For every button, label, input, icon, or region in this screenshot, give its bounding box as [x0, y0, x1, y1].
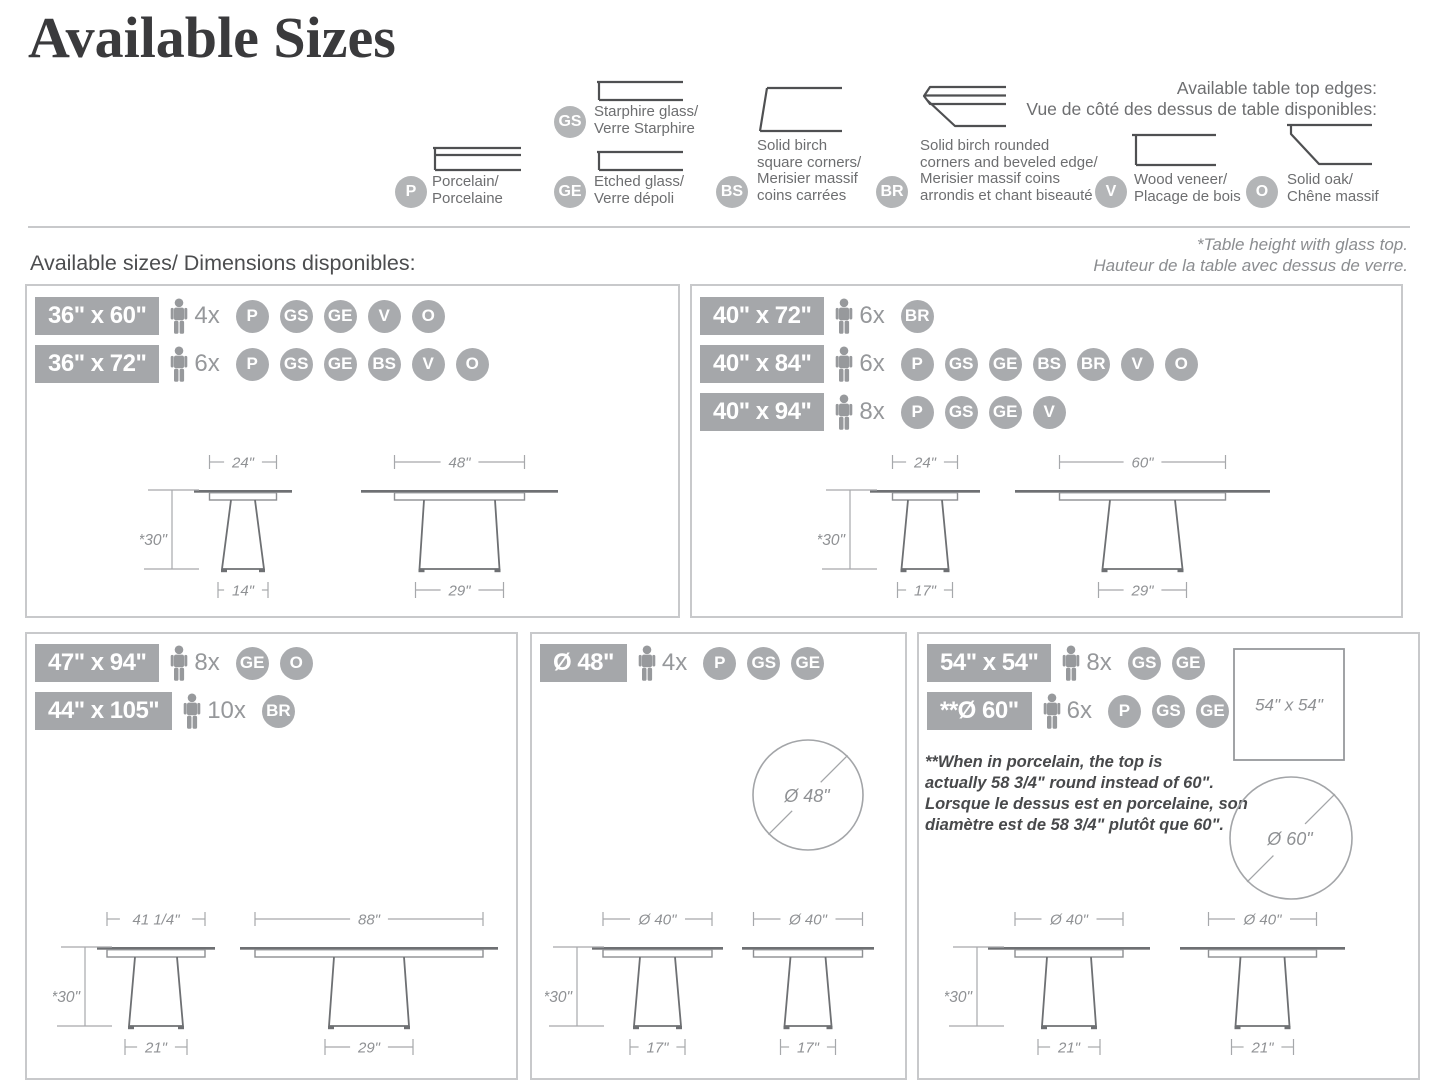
- page-title: Available Sizes: [28, 4, 396, 71]
- finish-badge: P: [1108, 695, 1141, 728]
- finish-badge: O: [280, 647, 313, 680]
- seat-count: 8x: [1086, 649, 1111, 677]
- size-row: 54" x 54" 8x GS GE: [927, 643, 1205, 683]
- finish-badge: BR: [262, 695, 295, 728]
- size-chip: 40" x 72": [700, 297, 824, 335]
- finish-badge: GE: [236, 647, 269, 680]
- person-icon: [1041, 693, 1063, 729]
- finish-badges: P GS GE: [1108, 695, 1229, 728]
- edge-profile-birch-beveled-icon: [921, 84, 1006, 136]
- svg-text:Ø 40": Ø 40": [638, 912, 678, 929]
- svg-text:21": 21": [144, 1040, 168, 1057]
- porcelain-footnote: **When in porcelain, the top is actually…: [925, 752, 1235, 836]
- finish-badge: GE: [324, 300, 357, 333]
- person-icon: [833, 346, 855, 382]
- svg-text:*30": *30": [53, 989, 81, 1006]
- svg-text:29": 29": [357, 1040, 381, 1057]
- finish-badges: BR: [901, 300, 934, 333]
- table-side-view-drawing: 41 1/4"21"*30": [53, 905, 238, 1065]
- finish-badges: P GS GE V: [901, 396, 1066, 429]
- legend-label-porcelain: Porcelain/Porcelaine: [432, 174, 503, 207]
- finish-badge: BR: [1077, 348, 1110, 381]
- svg-text:60": 60": [1131, 455, 1154, 472]
- edge-profile-porcelain-icon: [433, 146, 521, 172]
- edge-profile-oak-icon: [1287, 122, 1372, 168]
- legend-label-etched: Etched glass/Verre dépoli: [594, 174, 684, 207]
- svg-text:*30": *30": [545, 989, 573, 1006]
- seat-count: 6x: [859, 350, 884, 378]
- table-side-view-drawing: 60"29": [1010, 448, 1273, 608]
- seat-count: 6x: [1067, 697, 1092, 725]
- svg-text:14": 14": [232, 583, 255, 600]
- size-chip: 36" x 60": [35, 297, 159, 335]
- legend-label-birch-beveled: Solid birch roundedcorners and beveled e…: [920, 138, 1098, 204]
- seat-count: 8x: [859, 398, 884, 426]
- legend-badge-etched: GE: [554, 176, 586, 208]
- svg-text:54" x 54": 54" x 54": [1255, 696, 1324, 715]
- size-chip: 54" x 54": [927, 644, 1051, 682]
- person-icon: [833, 298, 855, 334]
- person-icon: [833, 394, 855, 430]
- finish-badge: GE: [1196, 695, 1229, 728]
- table-side-view-drawing: Ø 40"21": [1175, 905, 1347, 1065]
- size-chip: 40" x 94": [700, 393, 824, 431]
- svg-text:29": 29": [447, 583, 471, 600]
- size-row: Ø 48" 4x P GS GE: [540, 643, 824, 683]
- svg-text:21": 21": [1057, 1040, 1081, 1057]
- finish-badge: BR: [901, 300, 934, 333]
- svg-text:Ø 60": Ø 60": [1266, 829, 1314, 849]
- legend-label-birch-square: Solid birchsquare corners/Merisier massi…: [757, 138, 861, 204]
- legend-label-starphire: Starphire glass/Verre Starphire: [594, 104, 698, 137]
- legend-badge-starphire: GS: [554, 106, 586, 138]
- finish-badge: O: [412, 300, 445, 333]
- finish-badges: GS GE: [1128, 647, 1205, 680]
- edge-profile-birch-square-icon: [757, 86, 842, 134]
- svg-text:17": 17": [914, 583, 937, 600]
- finish-badge: GS: [280, 348, 313, 381]
- finish-badge: P: [901, 348, 934, 381]
- size-row: 40" x 94" 8x P GS GE V: [700, 392, 1066, 432]
- finish-badges: GE O: [236, 647, 313, 680]
- svg-text:17": 17": [646, 1040, 669, 1057]
- svg-text:*30": *30": [140, 532, 168, 549]
- legend-badge-oak: O: [1246, 176, 1278, 208]
- svg-text:*30": *30": [818, 532, 846, 549]
- table-side-view-drawing: Ø 40"21"*30": [945, 905, 1158, 1065]
- legend-badge-veneer: V: [1095, 176, 1127, 208]
- finish-badges: BR: [262, 695, 295, 728]
- finish-badge: P: [236, 348, 269, 381]
- svg-text:48": 48": [448, 455, 471, 472]
- table-side-view-drawing: 24"14"*30": [140, 448, 315, 608]
- seat-count: 4x: [194, 302, 219, 330]
- legend-badge-porcelain: P: [395, 176, 427, 208]
- finish-badges: P GS GE V O: [236, 300, 445, 333]
- finish-badges: P GS GE: [703, 647, 824, 680]
- finish-badge: GS: [945, 348, 978, 381]
- size-row: **Ø 60" 6x P GS GE: [927, 691, 1229, 731]
- person-icon: [181, 693, 203, 729]
- glass-top-footnote: *Table height with glass top. Hauteur de…: [1093, 234, 1408, 276]
- round-top-drawing: Ø 60": [1228, 775, 1354, 901]
- svg-text:17": 17": [797, 1040, 820, 1057]
- edges-heading: Available table top edges: Vue de côté d…: [1026, 78, 1377, 120]
- finish-badge: P: [901, 396, 934, 429]
- table-side-view-drawing: 88"29": [235, 905, 503, 1065]
- finish-badge: GS: [945, 396, 978, 429]
- svg-text:29": 29": [1130, 583, 1154, 600]
- finish-badge: GE: [989, 396, 1022, 429]
- finish-badge: O: [1165, 348, 1198, 381]
- person-icon: [636, 645, 658, 681]
- size-row: 40" x 84" 6x P GS GE BS BR V O: [700, 344, 1198, 384]
- round-top-drawing: Ø 48": [751, 738, 865, 852]
- finish-badge: GS: [280, 300, 313, 333]
- seat-count: 4x: [662, 649, 687, 677]
- legend-badge-birch-beveled: BR: [876, 176, 908, 208]
- table-side-view-drawing: Ø 40"17": [738, 905, 879, 1065]
- panel-36-tables: 36" x 60" 4x P GS GE V O 36" x 72" 6x P …: [25, 284, 680, 618]
- svg-text:21": 21": [1250, 1040, 1274, 1057]
- finish-badge: P: [703, 647, 736, 680]
- table-side-view-drawing: 48"29": [355, 448, 567, 608]
- size-row: 47" x 94" 8x GE O: [35, 643, 313, 683]
- finish-badge: P: [236, 300, 269, 333]
- finish-badge: V: [368, 300, 401, 333]
- table-side-view-drawing: 24"17"*30": [818, 448, 993, 608]
- finish-badge: GE: [324, 348, 357, 381]
- svg-text:24": 24": [231, 455, 255, 472]
- size-chip: 36" x 72": [35, 345, 159, 383]
- size-chip: 47" x 94": [35, 644, 159, 682]
- person-icon: [168, 346, 190, 382]
- finish-badge: GS: [1128, 647, 1161, 680]
- svg-text:*30": *30": [945, 989, 973, 1006]
- seat-count: 8x: [194, 649, 219, 677]
- finish-badge: BS: [368, 348, 401, 381]
- seat-count: 10x: [207, 697, 246, 725]
- finish-badge: GS: [747, 647, 780, 680]
- finish-badge: GE: [791, 647, 824, 680]
- person-icon: [168, 298, 190, 334]
- section-label: Available sizes/ Dimensions disponibles:: [30, 251, 416, 276]
- svg-text:Ø 40": Ø 40": [1049, 912, 1089, 929]
- finish-badges: P GS GE BS V O: [236, 348, 489, 381]
- size-chip: 44" x 105": [35, 692, 172, 730]
- seat-count: 6x: [194, 350, 219, 378]
- svg-text:Ø 40": Ø 40": [788, 912, 828, 929]
- legend-label-veneer: Wood veneer/Placage de bois: [1134, 172, 1241, 205]
- size-row: 44" x 105" 10x BR: [35, 691, 295, 731]
- svg-text:88": 88": [358, 912, 381, 929]
- finish-badge: O: [456, 348, 489, 381]
- svg-text:Ø 48": Ø 48": [783, 786, 831, 806]
- finish-badge: GE: [989, 348, 1022, 381]
- edge-profile-starphire-icon: [597, 80, 683, 102]
- finish-badge: GS: [1152, 695, 1185, 728]
- size-row: 36" x 60" 4x P GS GE V O: [35, 296, 445, 336]
- finish-badge: BS: [1033, 348, 1066, 381]
- divider: [28, 226, 1410, 228]
- edge-profile-veneer-icon: [1132, 132, 1216, 168]
- svg-text:Ø 40": Ø 40": [1243, 912, 1283, 929]
- size-row: 40" x 72" 6x BR: [700, 296, 934, 336]
- finish-badges: P GS GE BS BR V O: [901, 348, 1198, 381]
- legend-badge-birch-square: BS: [716, 176, 748, 208]
- size-chip: **Ø 60": [927, 692, 1032, 730]
- size-chip: Ø 48": [540, 644, 627, 682]
- seat-count: 6x: [859, 302, 884, 330]
- svg-text:24": 24": [913, 455, 937, 472]
- person-icon: [168, 645, 190, 681]
- size-row: 36" x 72" 6x P GS GE BS V O: [35, 344, 489, 384]
- edge-profile-etched-icon: [597, 150, 683, 172]
- spec-sheet-page: Available Sizes P GS GE BS BR V O Porcel…: [0, 0, 1445, 1084]
- finish-badge: V: [412, 348, 445, 381]
- finish-badge: V: [1033, 396, 1066, 429]
- finish-badge: V: [1121, 348, 1154, 381]
- size-chip: 40" x 84": [700, 345, 824, 383]
- legend-label-oak: Solid oak/Chêne massif: [1287, 172, 1379, 205]
- table-side-view-drawing: Ø 40"17"*30": [545, 905, 730, 1065]
- finish-badge: GE: [1172, 647, 1205, 680]
- person-icon: [1060, 645, 1082, 681]
- square-top-drawing: 54" x 54": [1233, 648, 1345, 761]
- svg-text:41 1/4": 41 1/4": [132, 912, 180, 929]
